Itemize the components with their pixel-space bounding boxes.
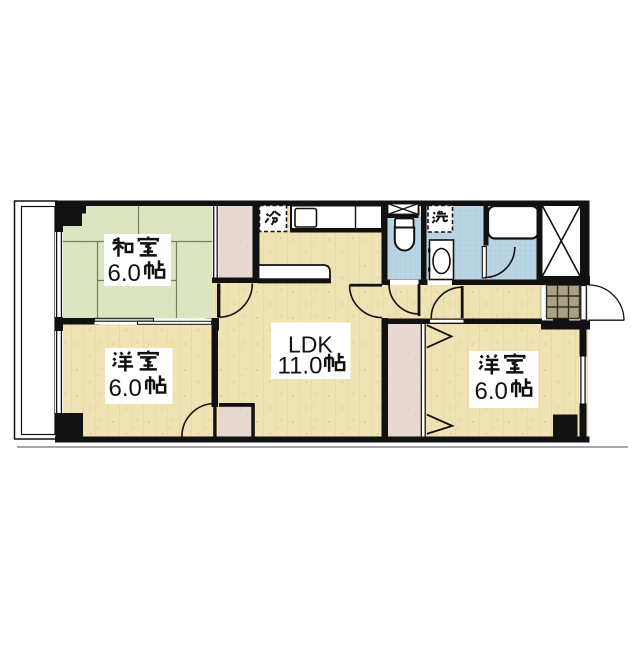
svg-text:6.0: 6.0 <box>475 378 508 405</box>
svg-text:6.0: 6.0 <box>109 375 142 402</box>
svg-text:6.0: 6.0 <box>108 260 141 287</box>
svg-text:11.0: 11.0 <box>278 353 323 380</box>
